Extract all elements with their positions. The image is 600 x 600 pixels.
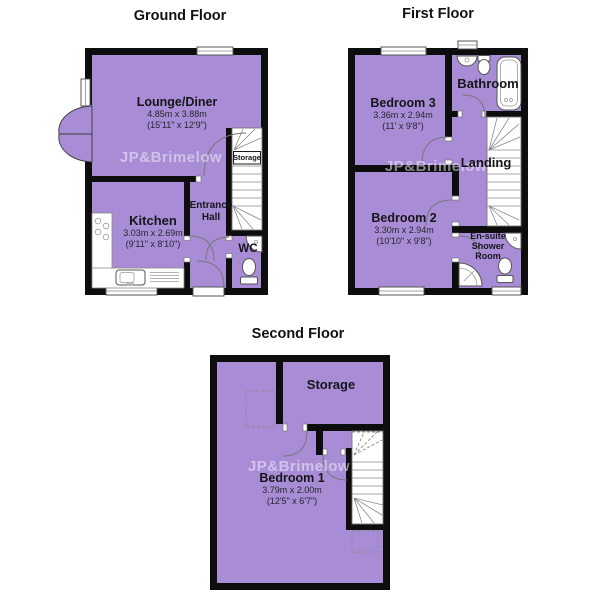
room-label-wc: WC bbox=[238, 242, 257, 256]
floorplan-canvas: Ground Floor First Floor Second Floor JP… bbox=[0, 0, 600, 600]
front-door bbox=[193, 287, 224, 296]
wc-toilet bbox=[241, 259, 258, 285]
room-label-storage2: Storage bbox=[307, 378, 355, 392]
room-label-entrance-hall: Entrance Hall bbox=[186, 200, 236, 223]
room-label-ensuite: En-suite Shower Room bbox=[460, 231, 516, 261]
room-label-landing: Landing bbox=[461, 156, 512, 170]
room-label-bedroom2: Bedroom 2 3.30m x 2.94m (10'10" x 9'8") bbox=[371, 211, 436, 246]
room-label-understairs-storage: Storage bbox=[233, 154, 261, 162]
ground-staircase bbox=[232, 128, 262, 230]
second-staircase bbox=[352, 431, 383, 524]
watermark-ground: JP&Brimelow bbox=[120, 149, 222, 166]
second-floor-title: Second Floor bbox=[252, 326, 345, 342]
french-doors bbox=[59, 105, 93, 162]
room-label-bedroom1: Bedroom 1 3.79m x 2.00m (12'5" x 6'7") bbox=[259, 471, 324, 506]
first-staircase bbox=[487, 117, 521, 226]
ground-floor-plan bbox=[59, 47, 268, 296]
room-label-bathroom: Bathroom bbox=[457, 77, 518, 91]
first-floor-title: First Floor bbox=[402, 6, 474, 22]
room-label-bedroom3: Bedroom 3 3.36m x 2.94m (11' x 9'8") bbox=[370, 96, 435, 131]
ensuite-toilet bbox=[497, 258, 513, 283]
room-label-kitchen: Kitchen 3.03m x 2.69m (9'11" x 8'10") bbox=[123, 214, 183, 249]
ground-floor-title: Ground Floor bbox=[134, 8, 227, 24]
room-label-lounge: Lounge/Diner 4.85m x 3.88m (15'11" x 12'… bbox=[137, 95, 218, 130]
bathroom-toilet bbox=[478, 56, 490, 75]
